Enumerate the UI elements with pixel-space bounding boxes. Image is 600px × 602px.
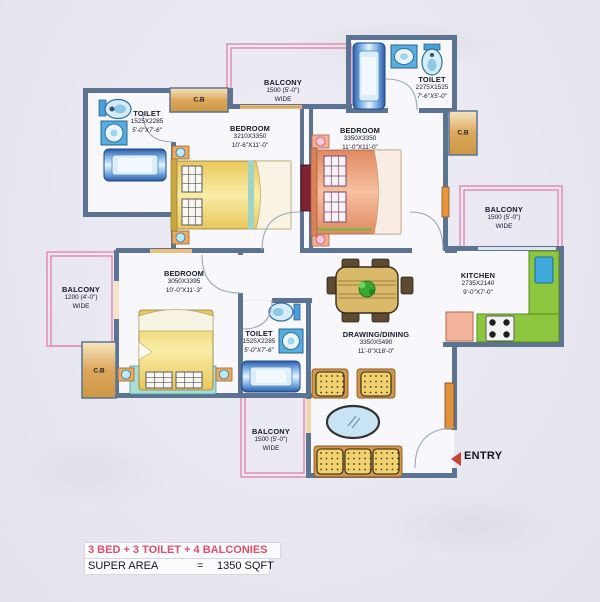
- label-balcony-top: BALCONY 1500 (5'-0") WIDE: [264, 79, 302, 104]
- label-bedroom-top-right: BEDROOM 3350X3350 11'-0"X11'-0": [340, 127, 380, 152]
- entry-arrow-icon: [451, 452, 461, 466]
- summary-area-label: SUPER AREA: [88, 560, 158, 572]
- label-toilet-middle: TOILET 1525X2285 5'-0"X7'-6": [243, 330, 276, 355]
- label-cupboard-top-right: C.B: [457, 130, 468, 137]
- label-bedroom-top-left: BEDROOM 3210X3350 10'-6"X11'-0": [230, 125, 270, 150]
- summary-equals: =: [197, 560, 203, 572]
- entry-label: ENTRY: [464, 450, 502, 462]
- label-balcony-right: BALCONY 1500 (5'-0") WIDE: [485, 206, 523, 231]
- summary-area-value: 1350 SQFT: [217, 560, 274, 572]
- bed-top-left: [171, 146, 291, 244]
- floorplan-page: TOILET 1525X2285 5'-0"X7'-6" BEDROOM 321…: [0, 0, 600, 602]
- summary-area-row: SUPER AREA = 1350 SQFT: [84, 558, 270, 575]
- room-floors: [85, 37, 561, 475]
- label-cupboard-left: C.B: [93, 368, 104, 375]
- label-cupboard-top-left: C.B: [193, 97, 204, 104]
- label-balcony-left: BALCONY 1200 (4'-0") WIDE: [62, 286, 100, 311]
- label-toilet-top-right: TOILET 2275X1525 7'-6"X5'-0": [416, 76, 449, 101]
- entry-marker: ENTRY: [464, 450, 502, 462]
- label-kitchen: KITCHEN 2735X2140 9'-0"X7'-0": [461, 272, 495, 297]
- label-balcony-bottom: BALCONY 1500 (5'-0") WIDE: [252, 428, 290, 453]
- label-bedroom-bottom-left: BEDROOM 3050X3395 10'-0"X11'-3": [164, 270, 204, 295]
- label-drawing-dining: DRAWING/DINING 3350X5490 11'-0"X18'-0": [343, 331, 409, 356]
- summary-title: 3 BED + 3 TOILET + 4 BALCONIES: [84, 542, 281, 559]
- label-toilet-top-left: TOILET 1525X2285 5'-0"X7'-6": [131, 110, 164, 135]
